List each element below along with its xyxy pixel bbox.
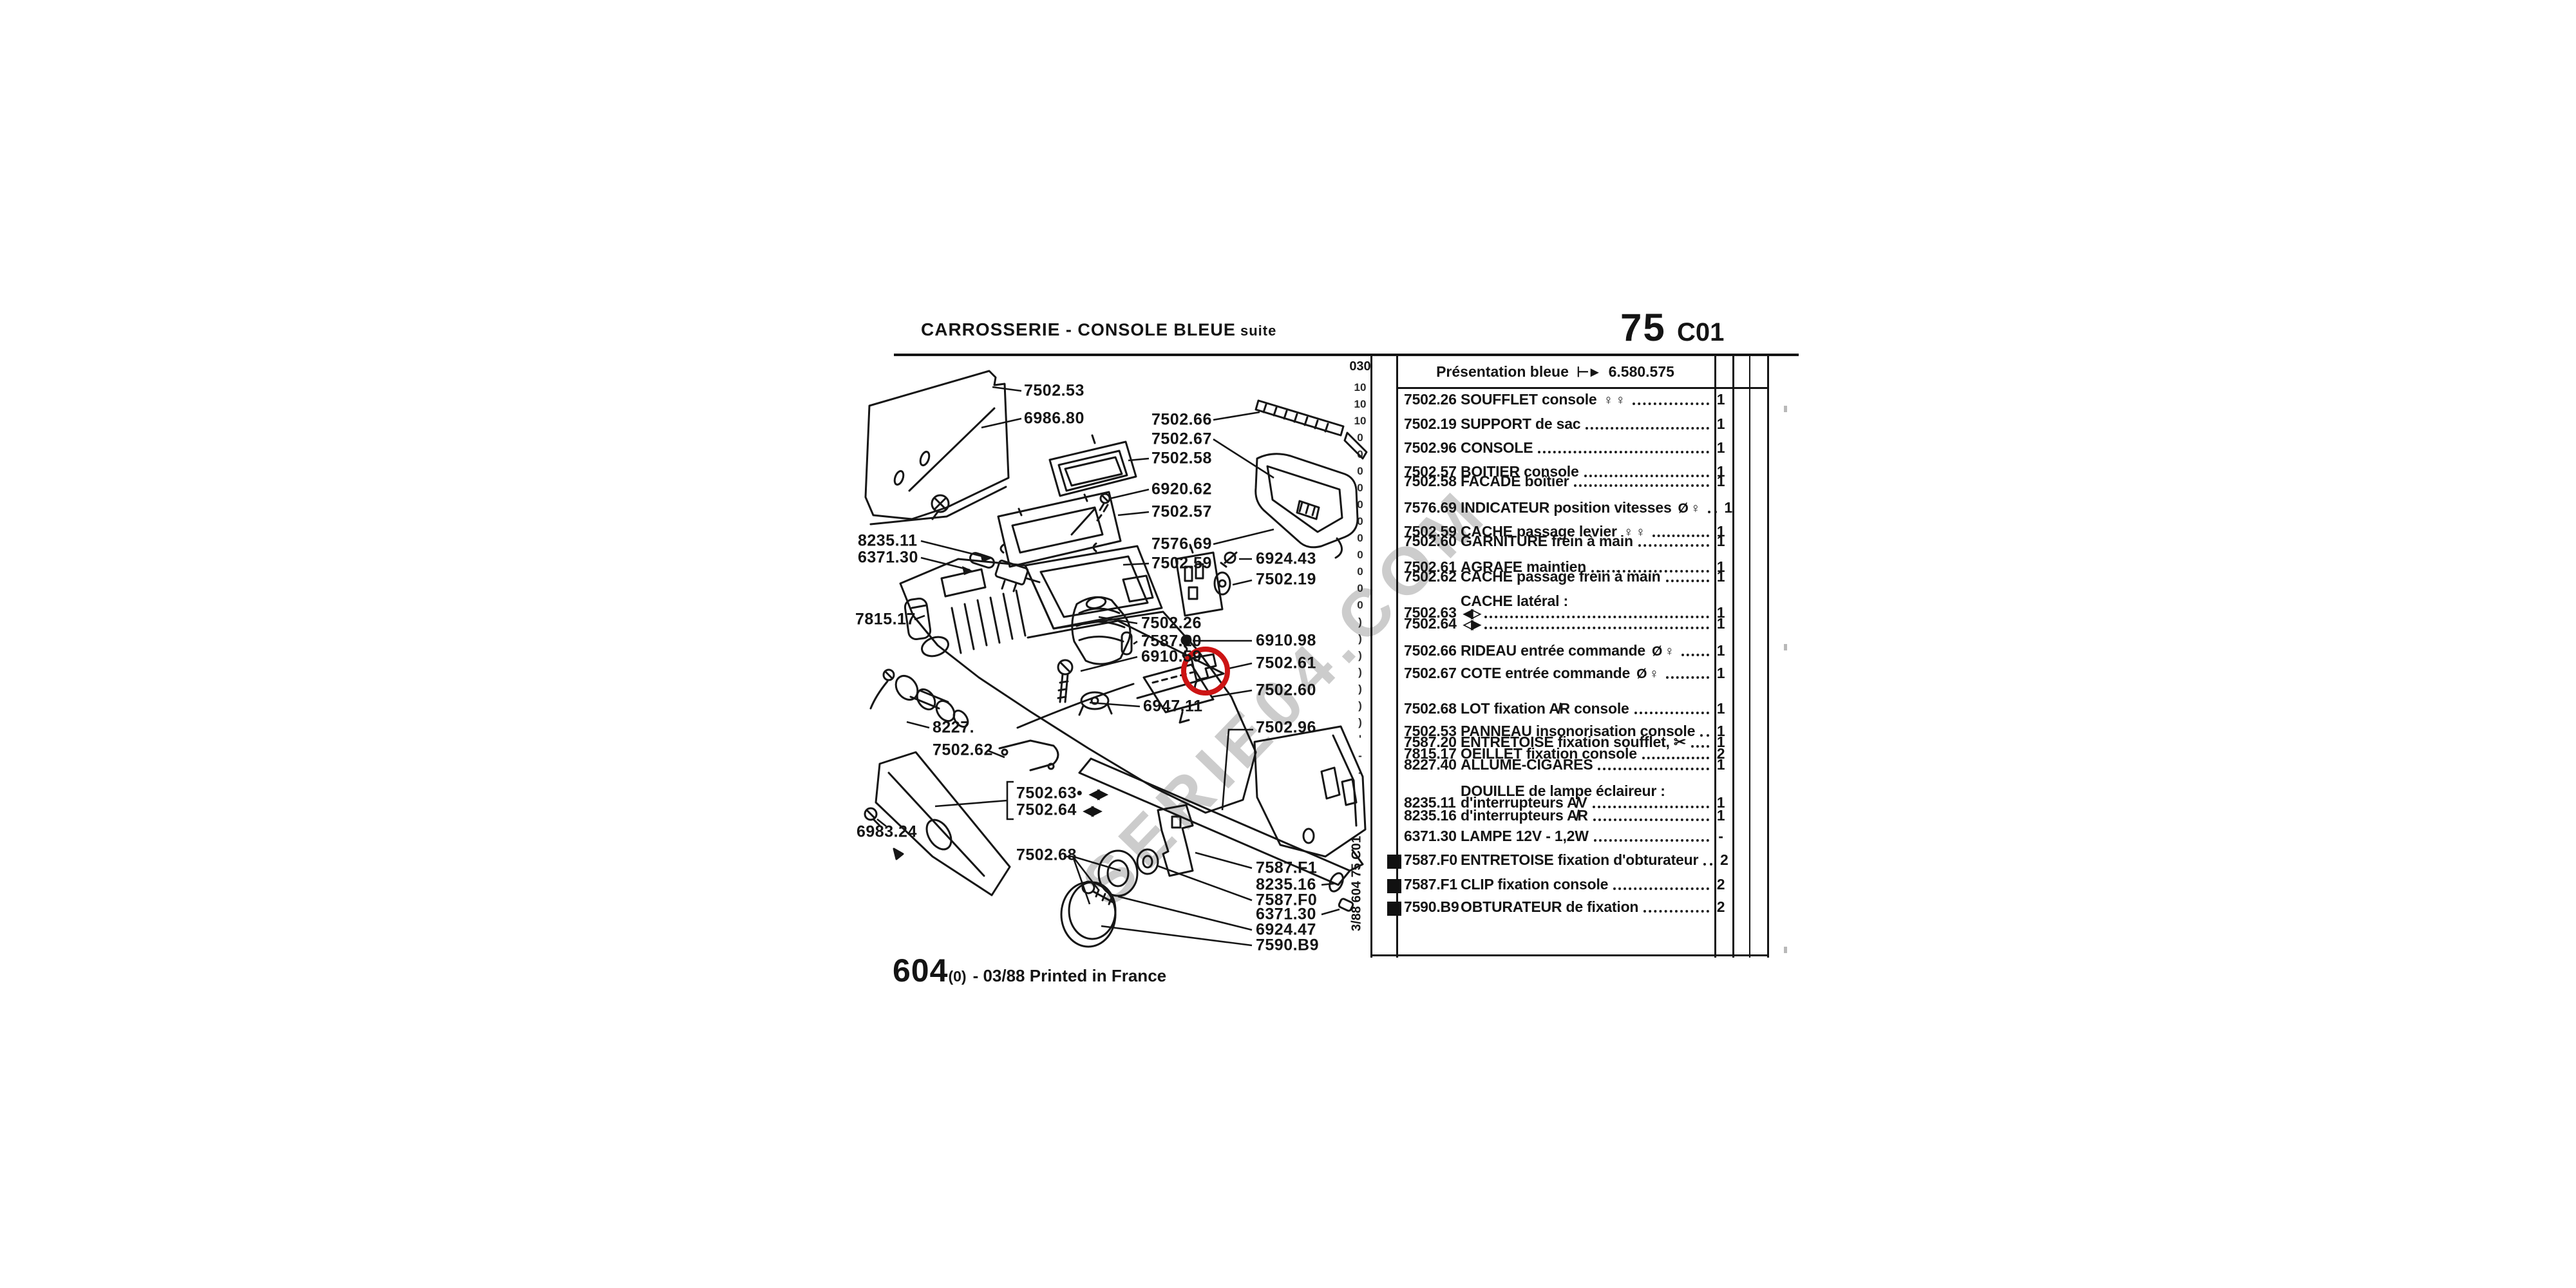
diagram-part-label: 7502.26 [1141, 614, 1202, 633]
part-fixation-kit [1061, 805, 1193, 947]
diagram-part-label: 7502.61 [1256, 654, 1316, 673]
part-number: 6910.59 [1141, 648, 1202, 666]
diagram-part-label: 7502.67 [1151, 430, 1212, 449]
part-number: 6924.43 [1256, 550, 1316, 568]
diagram-part-label: 7502.59 [1151, 554, 1212, 573]
part-cote-indicateur [1256, 454, 1358, 558]
diagram-part-label: 7587.F1 [1256, 859, 1317, 878]
diagram-part-label: 6910.98 [1256, 632, 1316, 650]
diagram-part-label: 6910.59 [1141, 648, 1202, 667]
diagram-part-label: 7502.68 [1016, 846, 1077, 865]
part-number: 7587.F1 [1256, 859, 1317, 877]
part-number: 7590.B9 [1256, 936, 1319, 954]
part-screw-6920-62 [1097, 494, 1110, 520]
part-number: 7502.59 [1151, 554, 1212, 573]
diagram-part-label: 7502.66 [1151, 411, 1212, 430]
diagram-part-label: 6983.24 [857, 823, 917, 842]
diagram-part-label: 7502.62 [933, 741, 993, 760]
part-number: 7502.62 [933, 741, 993, 759]
part-boitier-console [998, 492, 1121, 567]
part-number: 8227. [933, 719, 974, 737]
diagram-part-label: 7502.58 [1151, 450, 1212, 468]
part-number: 7502.53 [1024, 382, 1084, 400]
part-number: 6910.98 [1256, 632, 1316, 650]
part-number: 7502.63 [1016, 784, 1077, 802]
part-number: 7502.58 [1151, 450, 1212, 468]
part-number: 7502.67 [1151, 430, 1212, 448]
dot-icon: • [1077, 784, 1083, 802]
part-number: 7502.66 [1151, 411, 1212, 429]
diagram-part-label: 7576.69 [1151, 535, 1212, 554]
diagram-part-label: 6920.62 [1151, 480, 1212, 499]
diagram-part-label: 6947.11 [1143, 697, 1203, 716]
diagram-part-label: 7502.63•◀▶ [1016, 784, 1106, 803]
part-screw-6924-43 [1221, 553, 1236, 567]
part-rideau-strip [1256, 401, 1367, 459]
diagram-part-label: 8235.11 [858, 532, 918, 551]
diagram-part-label: 6986.80 [1024, 410, 1084, 428]
diagram-part-label: 6371.30 [858, 549, 918, 567]
part-number: 7502.60 [1256, 681, 1316, 699]
arrow-pair-icon: ◀▶ [1083, 804, 1100, 819]
part-number: 6986.80 [1024, 410, 1084, 428]
part-number: 7815.17 [855, 611, 916, 629]
diagram-part-label: 7502.57 [1151, 503, 1212, 522]
part-number: 7502.96 [1256, 719, 1316, 737]
diagram-part-label: 7502.60 [1256, 681, 1316, 700]
part-console-body [900, 559, 1256, 813]
diagram-part-label: 6924.43 [1256, 550, 1316, 569]
part-number: 7502.57 [1151, 503, 1212, 521]
part-number: 6371.30 [858, 549, 918, 567]
diagram-part-label: 8227. [933, 719, 974, 737]
diagram-part-label: 7502.53 [1024, 382, 1084, 401]
diagram-part-label: 7502.19 [1256, 571, 1316, 589]
diagram-part-label: 7815.17 [855, 611, 916, 629]
part-facade-boitier [1050, 435, 1136, 496]
part-number: 7502.19 [1256, 571, 1316, 589]
part-number: 7502.64 [1016, 801, 1077, 819]
part-number: 8235.11 [858, 532, 918, 550]
part-number: 6920.62 [1151, 480, 1212, 498]
part-number: 6983.24 [857, 823, 917, 841]
part-lamp-small [1327, 871, 1354, 912]
part-number: 7502.26 [1141, 614, 1202, 632]
catalog-page: { "header": { "title_main": "CARROSSERIE… [0, 0, 2576, 1288]
part-panneau-insonorisation [866, 371, 1009, 524]
part-number: 6947.11 [1143, 697, 1203, 715]
part-number: 7502.68 [1016, 846, 1077, 864]
diagram-part-label: 7502.64◀▶ [1016, 801, 1100, 820]
arrow-pair-icon: ◀▶ [1089, 787, 1106, 802]
part-number: 7576.69 [1151, 535, 1212, 553]
part-number: 7502.61 [1256, 654, 1316, 672]
diagram-part-label: 7590.B9 [1256, 936, 1319, 955]
diagram-part-label: 7502.96 [1256, 719, 1316, 737]
